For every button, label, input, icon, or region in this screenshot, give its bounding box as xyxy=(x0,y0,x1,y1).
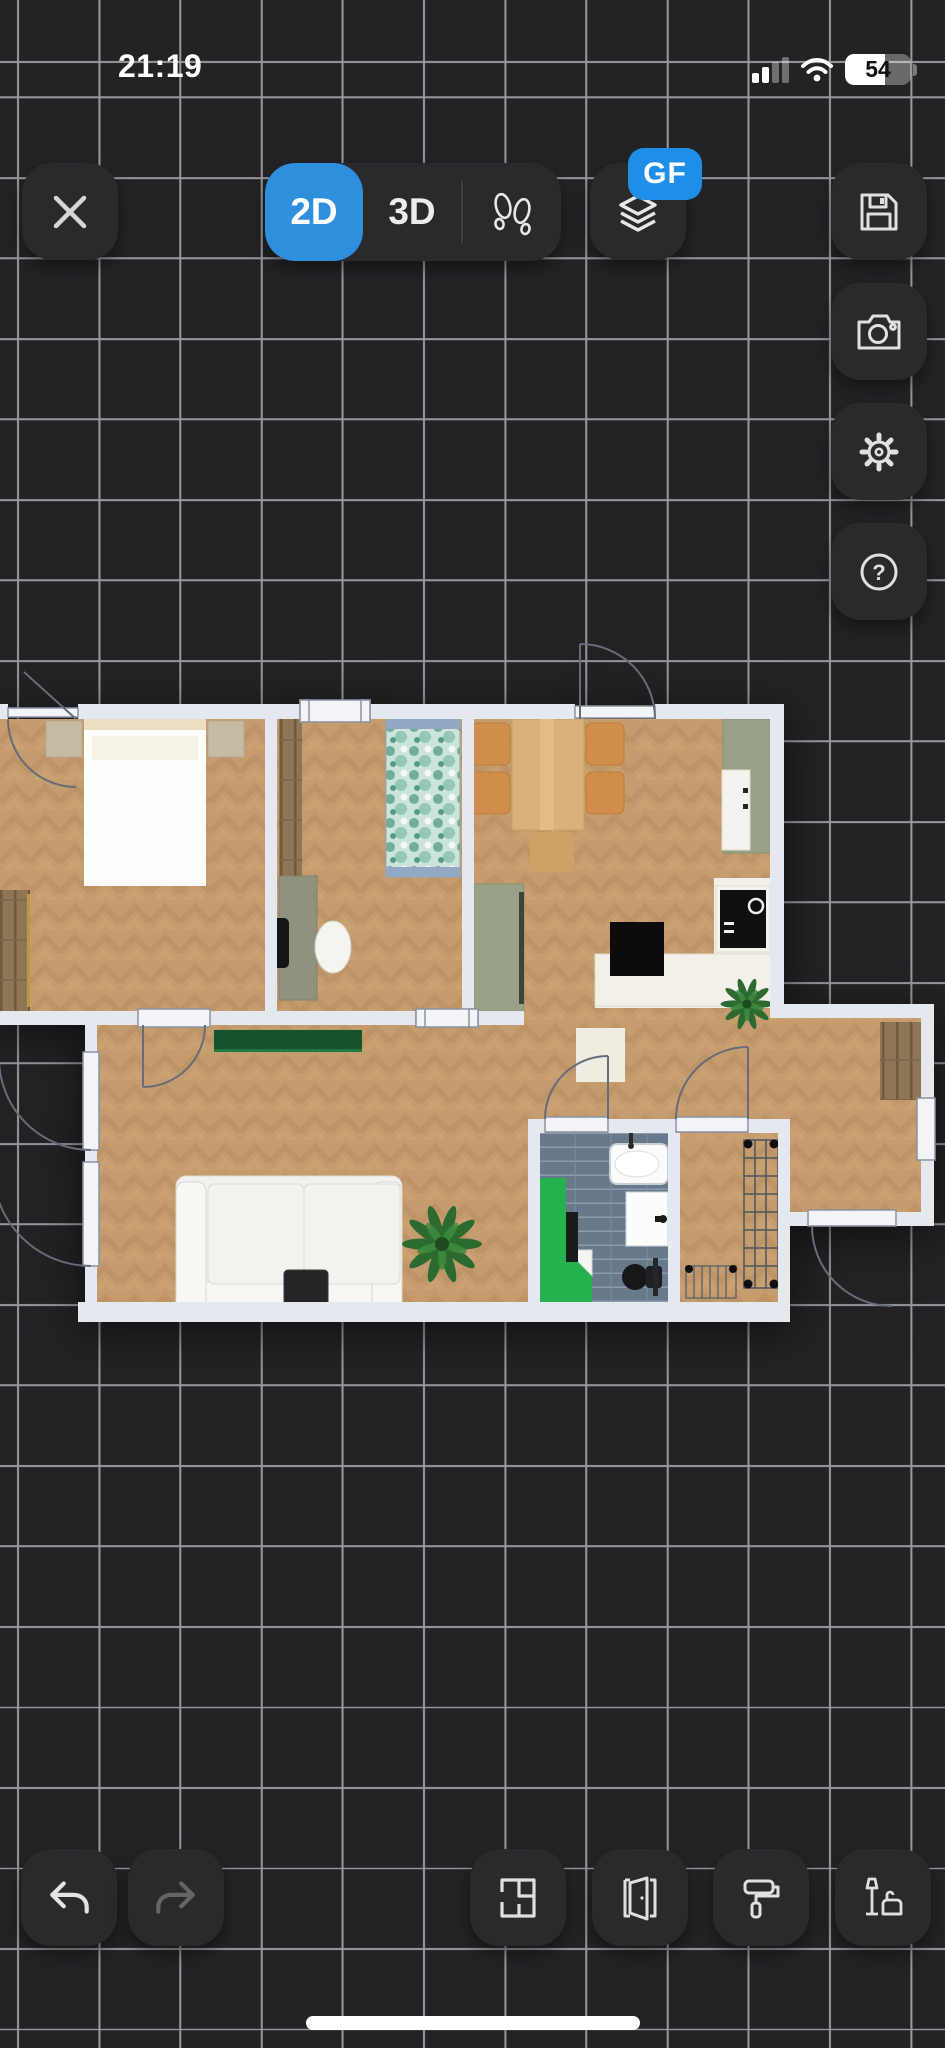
settings-gear-icon xyxy=(853,426,905,478)
canvas-grid[interactable]: 21:19 54 2D 3D xyxy=(0,0,945,2048)
help-button[interactable]: ? xyxy=(831,523,927,620)
battery-percent: 54 xyxy=(845,54,911,85)
office-window xyxy=(300,700,370,722)
wifi-icon xyxy=(799,56,835,83)
entry-door xyxy=(808,1210,896,1226)
double-bed[interactable] xyxy=(84,719,206,886)
office-chair-white[interactable] xyxy=(315,921,351,973)
bedroom-wardrobe[interactable] xyxy=(0,890,30,1011)
footprints-icon xyxy=(486,186,538,238)
entry-wardrobe[interactable] xyxy=(880,1022,921,1100)
redo-icon xyxy=(151,1873,201,1923)
furniture-tool-button[interactable] xyxy=(835,1849,931,1946)
living-window-2 xyxy=(83,1162,99,1266)
settings-button[interactable] xyxy=(831,403,927,500)
close-icon xyxy=(48,190,92,234)
pantry-cabinet[interactable] xyxy=(474,884,524,1011)
storage-door xyxy=(676,1117,748,1132)
living-door-threshold xyxy=(138,1009,210,1027)
office-closet[interactable] xyxy=(279,719,302,876)
undo-icon xyxy=(44,1873,94,1923)
single-bed-teal[interactable] xyxy=(386,719,460,877)
save-button[interactable] xyxy=(831,163,927,260)
cooktop[interactable] xyxy=(716,886,770,952)
view-mode-switch: 2D 3D xyxy=(265,163,561,261)
paint-roller-icon xyxy=(735,1872,787,1924)
hall-rug xyxy=(576,1028,625,1082)
doors-tool-button[interactable] xyxy=(592,1849,688,1946)
svg-text:?: ? xyxy=(872,560,885,585)
camera-button[interactable] xyxy=(831,283,927,380)
save-icon xyxy=(854,187,904,237)
tab-3d-view[interactable]: 3D xyxy=(363,163,461,261)
battery-icon: 54 xyxy=(845,54,911,85)
camera-icon xyxy=(853,306,905,358)
cellular-signal-icon xyxy=(752,56,789,83)
rooms-walls-icon xyxy=(492,1872,544,1924)
undo-button[interactable] xyxy=(21,1849,117,1946)
balcony-door xyxy=(575,706,655,718)
floorplan-canvas[interactable] xyxy=(0,0,945,2048)
rooms-tool-button[interactable] xyxy=(470,1849,566,1946)
nightstand-left[interactable] xyxy=(46,721,82,757)
sideboard[interactable] xyxy=(214,1030,362,1052)
help-icon: ? xyxy=(853,546,905,598)
redo-button[interactable] xyxy=(128,1849,224,1946)
doors-windows-icon xyxy=(614,1872,666,1924)
paint-tool-button[interactable] xyxy=(713,1849,809,1946)
bathroom-door xyxy=(545,1117,608,1132)
close-button[interactable] xyxy=(22,163,118,260)
floor-badge: GF xyxy=(628,148,702,200)
nightstand-right[interactable] xyxy=(208,721,244,757)
tab-walk-view[interactable] xyxy=(463,163,561,261)
tab-2d-view[interactable]: 2D xyxy=(265,163,363,261)
status-time: 21:19 xyxy=(118,48,202,85)
home-indicator[interactable] xyxy=(306,2016,640,2030)
kitchen-island[interactable] xyxy=(610,922,664,976)
bathroom-sink[interactable] xyxy=(626,1192,668,1246)
entry-door-arc xyxy=(812,1226,892,1306)
living-window-1 xyxy=(83,1052,99,1150)
hall-window xyxy=(917,1098,935,1160)
furniture-icon xyxy=(857,1872,909,1924)
